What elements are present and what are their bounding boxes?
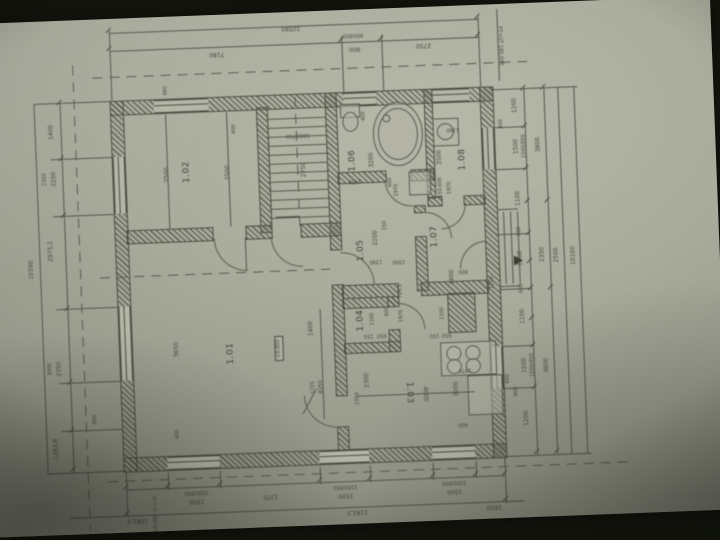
dim-label: 480 [163, 86, 168, 96]
dim-label: 2750 [301, 162, 308, 178]
dim-label: 2975,1 [48, 241, 55, 262]
dim-label: 400 [499, 119, 504, 129]
extension-line [109, 31, 113, 101]
dim-label: 600 [385, 307, 390, 317]
dim-label: 2800 [449, 269, 456, 285]
dim-label: 1200 [512, 98, 519, 114]
dim-label: 1500/850 [522, 134, 528, 158]
dim-label: 900/850 [343, 32, 364, 38]
interior-wall [463, 195, 485, 206]
dim-label: 900 [514, 387, 519, 397]
dim-label: 705,1 [398, 284, 404, 299]
dim-label: 1100 [515, 191, 522, 207]
dim-label: 1500/850 [184, 489, 208, 495]
window [482, 127, 496, 169]
extension-line [497, 233, 529, 235]
dim-label: 900 [93, 415, 98, 425]
dim-label: 2350 [539, 247, 546, 263]
dim-label: Ø250 [319, 380, 325, 394]
dim-label: 4000 [422, 386, 429, 402]
dim-label: 150,600 [438, 177, 444, 198]
dim-label: 1500/850 [442, 479, 466, 485]
level-marker: ±0,000 [274, 336, 284, 361]
dim-label: 600 [519, 283, 524, 293]
dim-label: 3000 [48, 363, 53, 376]
window [431, 88, 469, 102]
window [319, 449, 369, 464]
dim-label: 1500 [522, 358, 529, 374]
dim-label: 10100 [570, 246, 577, 265]
dim-label: 1500 [189, 498, 205, 505]
interior-wall [300, 222, 342, 238]
porch-step [510, 212, 514, 284]
dim-label: 1500/850 [333, 483, 357, 489]
dim-label: 400 [506, 374, 511, 384]
dimension-line [543, 87, 558, 454]
dim-label: 800 [458, 268, 468, 273]
door-arc [214, 238, 248, 272]
note-label: PT=UT 180,000 [496, 26, 503, 65]
dim-label: 650 [377, 332, 387, 337]
dim-label: 650 [442, 332, 452, 337]
dim-label: 1500 [392, 258, 405, 263]
dim-label: 1390 [446, 126, 459, 131]
dim-label: 3000 [453, 381, 460, 397]
dim-label: 1400 [48, 125, 55, 141]
porch-step [517, 211, 521, 283]
dim-label: 2350 [355, 392, 360, 405]
interior-wall-spine [337, 426, 350, 451]
dim-label: 600 [517, 226, 522, 236]
extension-line [491, 86, 577, 90]
dim-label: 150 [364, 333, 374, 338]
dimension-line [557, 87, 572, 454]
dim-label: 900 [349, 45, 361, 51]
dim-label: 3200 [369, 152, 376, 168]
dim-label: 1300 [518, 251, 525, 267]
dim-label: 3800 [544, 358, 551, 374]
dim-label: 2162,5 [347, 508, 368, 515]
axis-line [100, 269, 330, 279]
paper-sheet: 10590 7180 900/850 900 2750 PT=UT 180,00… [0, 0, 720, 538]
dimension-line [573, 86, 588, 453]
dimension-line [69, 500, 524, 518]
axis-line [72, 65, 91, 530]
dim-label: 1500 [513, 139, 520, 155]
toilet-bowl [342, 111, 359, 132]
door-arc [459, 241, 487, 269]
dim-label: 1400 [308, 321, 315, 337]
porch-step [503, 212, 507, 284]
dim-label: 1390 [369, 258, 382, 263]
dim-label: 3650 [174, 342, 181, 358]
dim-label: 1500 [447, 488, 463, 495]
extension-line [501, 345, 533, 347]
dim-label: 1970 [394, 184, 399, 197]
dim-label: 1500 [338, 492, 354, 499]
interior-wall [245, 225, 273, 240]
extension-line [34, 101, 110, 105]
dim-label: 1200 [524, 410, 531, 426]
dim-label: 1082,5 [127, 517, 148, 524]
porch-line [497, 208, 518, 210]
dim-label: 1450 [348, 178, 361, 183]
room-label: 1.04 [356, 309, 366, 331]
room-label: 1.06 [348, 150, 358, 172]
extension-line [341, 36, 344, 92]
dim-label: 1100 [370, 313, 375, 326]
note-label: ±0,000 m n.m. [153, 495, 159, 533]
extension-line [505, 453, 591, 457]
extension-line [477, 17, 481, 87]
washing-machine [408, 171, 431, 196]
dimension-line [34, 104, 49, 474]
dim-label: 1250 [490, 276, 495, 289]
dim-label: 2350 [56, 361, 63, 377]
dim-label: 10590 [29, 260, 36, 279]
extension-line [381, 35, 384, 91]
dim-label: 2750 [416, 42, 432, 49]
dim-label: 1725 [311, 381, 316, 394]
dim-label: 1283,9 [53, 439, 60, 460]
pantry-wall [388, 329, 401, 352]
dim-label: 1970 [399, 309, 404, 322]
dim-label: 2500 [225, 165, 232, 181]
dim-label: 150 [430, 332, 440, 337]
dim-label: 400 [362, 111, 367, 121]
dim-label: 1100 [440, 307, 445, 320]
dim-label: 150 [383, 221, 388, 231]
dim-label: 1375 [263, 493, 279, 500]
floor-plan: 10590 7180 900/850 900 2750 PT=UT 180,00… [0, 0, 720, 540]
dim-label: 400 [458, 421, 468, 426]
extension-line [48, 471, 124, 475]
dim-label: 1970 [459, 367, 472, 372]
staircase-treads [266, 109, 329, 223]
dim-label: 1970 [447, 182, 452, 195]
photo-of-floor-plan: 10590 7180 900/850 900 2750 PT=UT 180,00… [0, 0, 720, 540]
dim-label: 3500 [437, 150, 444, 166]
window [113, 156, 127, 213]
kitchen-counter [467, 374, 504, 415]
door-arc [271, 236, 303, 268]
extension-line [499, 288, 531, 290]
dim-label: 3800 [535, 137, 542, 153]
dim-label: 2500 [164, 167, 171, 183]
dim-label: 400 [176, 430, 181, 440]
interior-wall [126, 227, 213, 244]
dim-label: 2300 [364, 373, 371, 389]
extension-line [494, 168, 526, 170]
window [153, 98, 208, 113]
dim-label: 1100 [520, 309, 527, 325]
room-label: 1.02 [182, 161, 192, 183]
room-label: 1.01 [226, 342, 236, 364]
dim-label: 1650 [487, 503, 503, 510]
window [432, 445, 475, 460]
dim-label: 400 [232, 124, 237, 134]
window [167, 455, 219, 470]
room-label: 1.08 [458, 148, 468, 170]
dim-label: 1500/850 [530, 353, 536, 377]
room-label: 1.05 [356, 239, 366, 261]
dim-label: 2200 [373, 230, 380, 246]
chimney-block [447, 292, 477, 333]
room-label: 1.07 [430, 225, 440, 247]
dim-label: 2500 [553, 247, 560, 263]
dim-label: 1000/750 [286, 132, 310, 138]
dim-label: 2200 [51, 171, 58, 187]
dim-label: 7180 [209, 51, 225, 58]
dim-label: 2350 [43, 173, 48, 186]
axis-line [93, 61, 533, 79]
interior-wall [337, 170, 386, 184]
dim-label: 10590 [281, 25, 300, 32]
